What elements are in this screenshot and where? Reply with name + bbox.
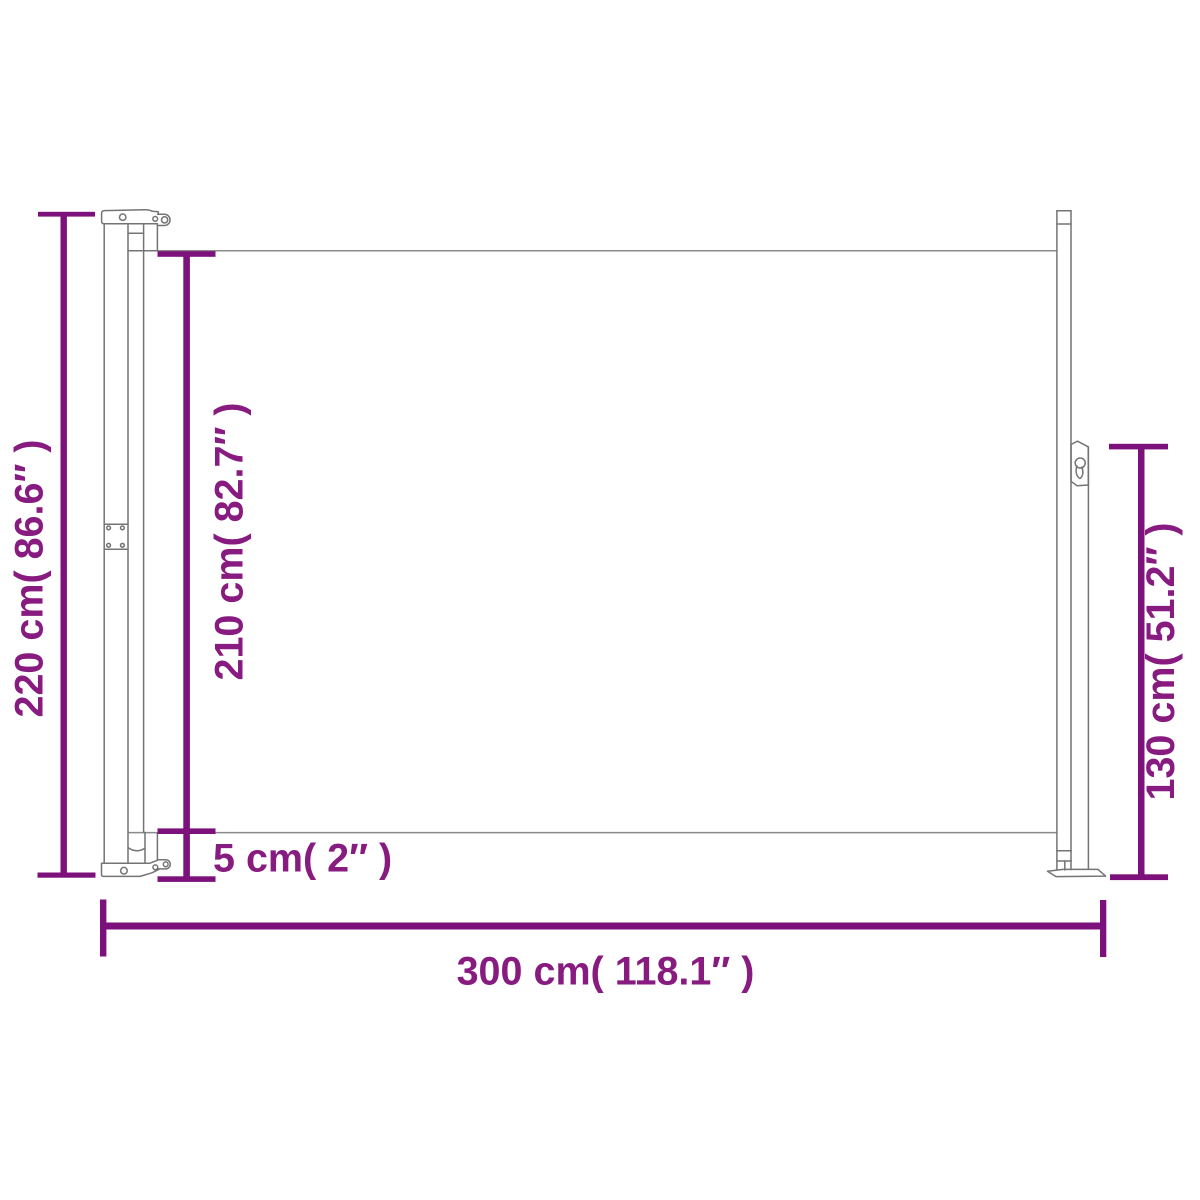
svg-text:130 cm( 51.2″ ): 130 cm( 51.2″ ) — [1139, 522, 1183, 800]
svg-text:220 cm( 86.6″ ): 220 cm( 86.6″ ) — [7, 439, 51, 717]
svg-text:5 cm( 2″ ): 5 cm( 2″ ) — [213, 836, 392, 880]
svg-text:210 cm( 82.7″ ): 210 cm( 82.7″ ) — [207, 402, 251, 680]
svg-text:300 cm( 118.1″ ): 300 cm( 118.1″ ) — [457, 950, 755, 994]
